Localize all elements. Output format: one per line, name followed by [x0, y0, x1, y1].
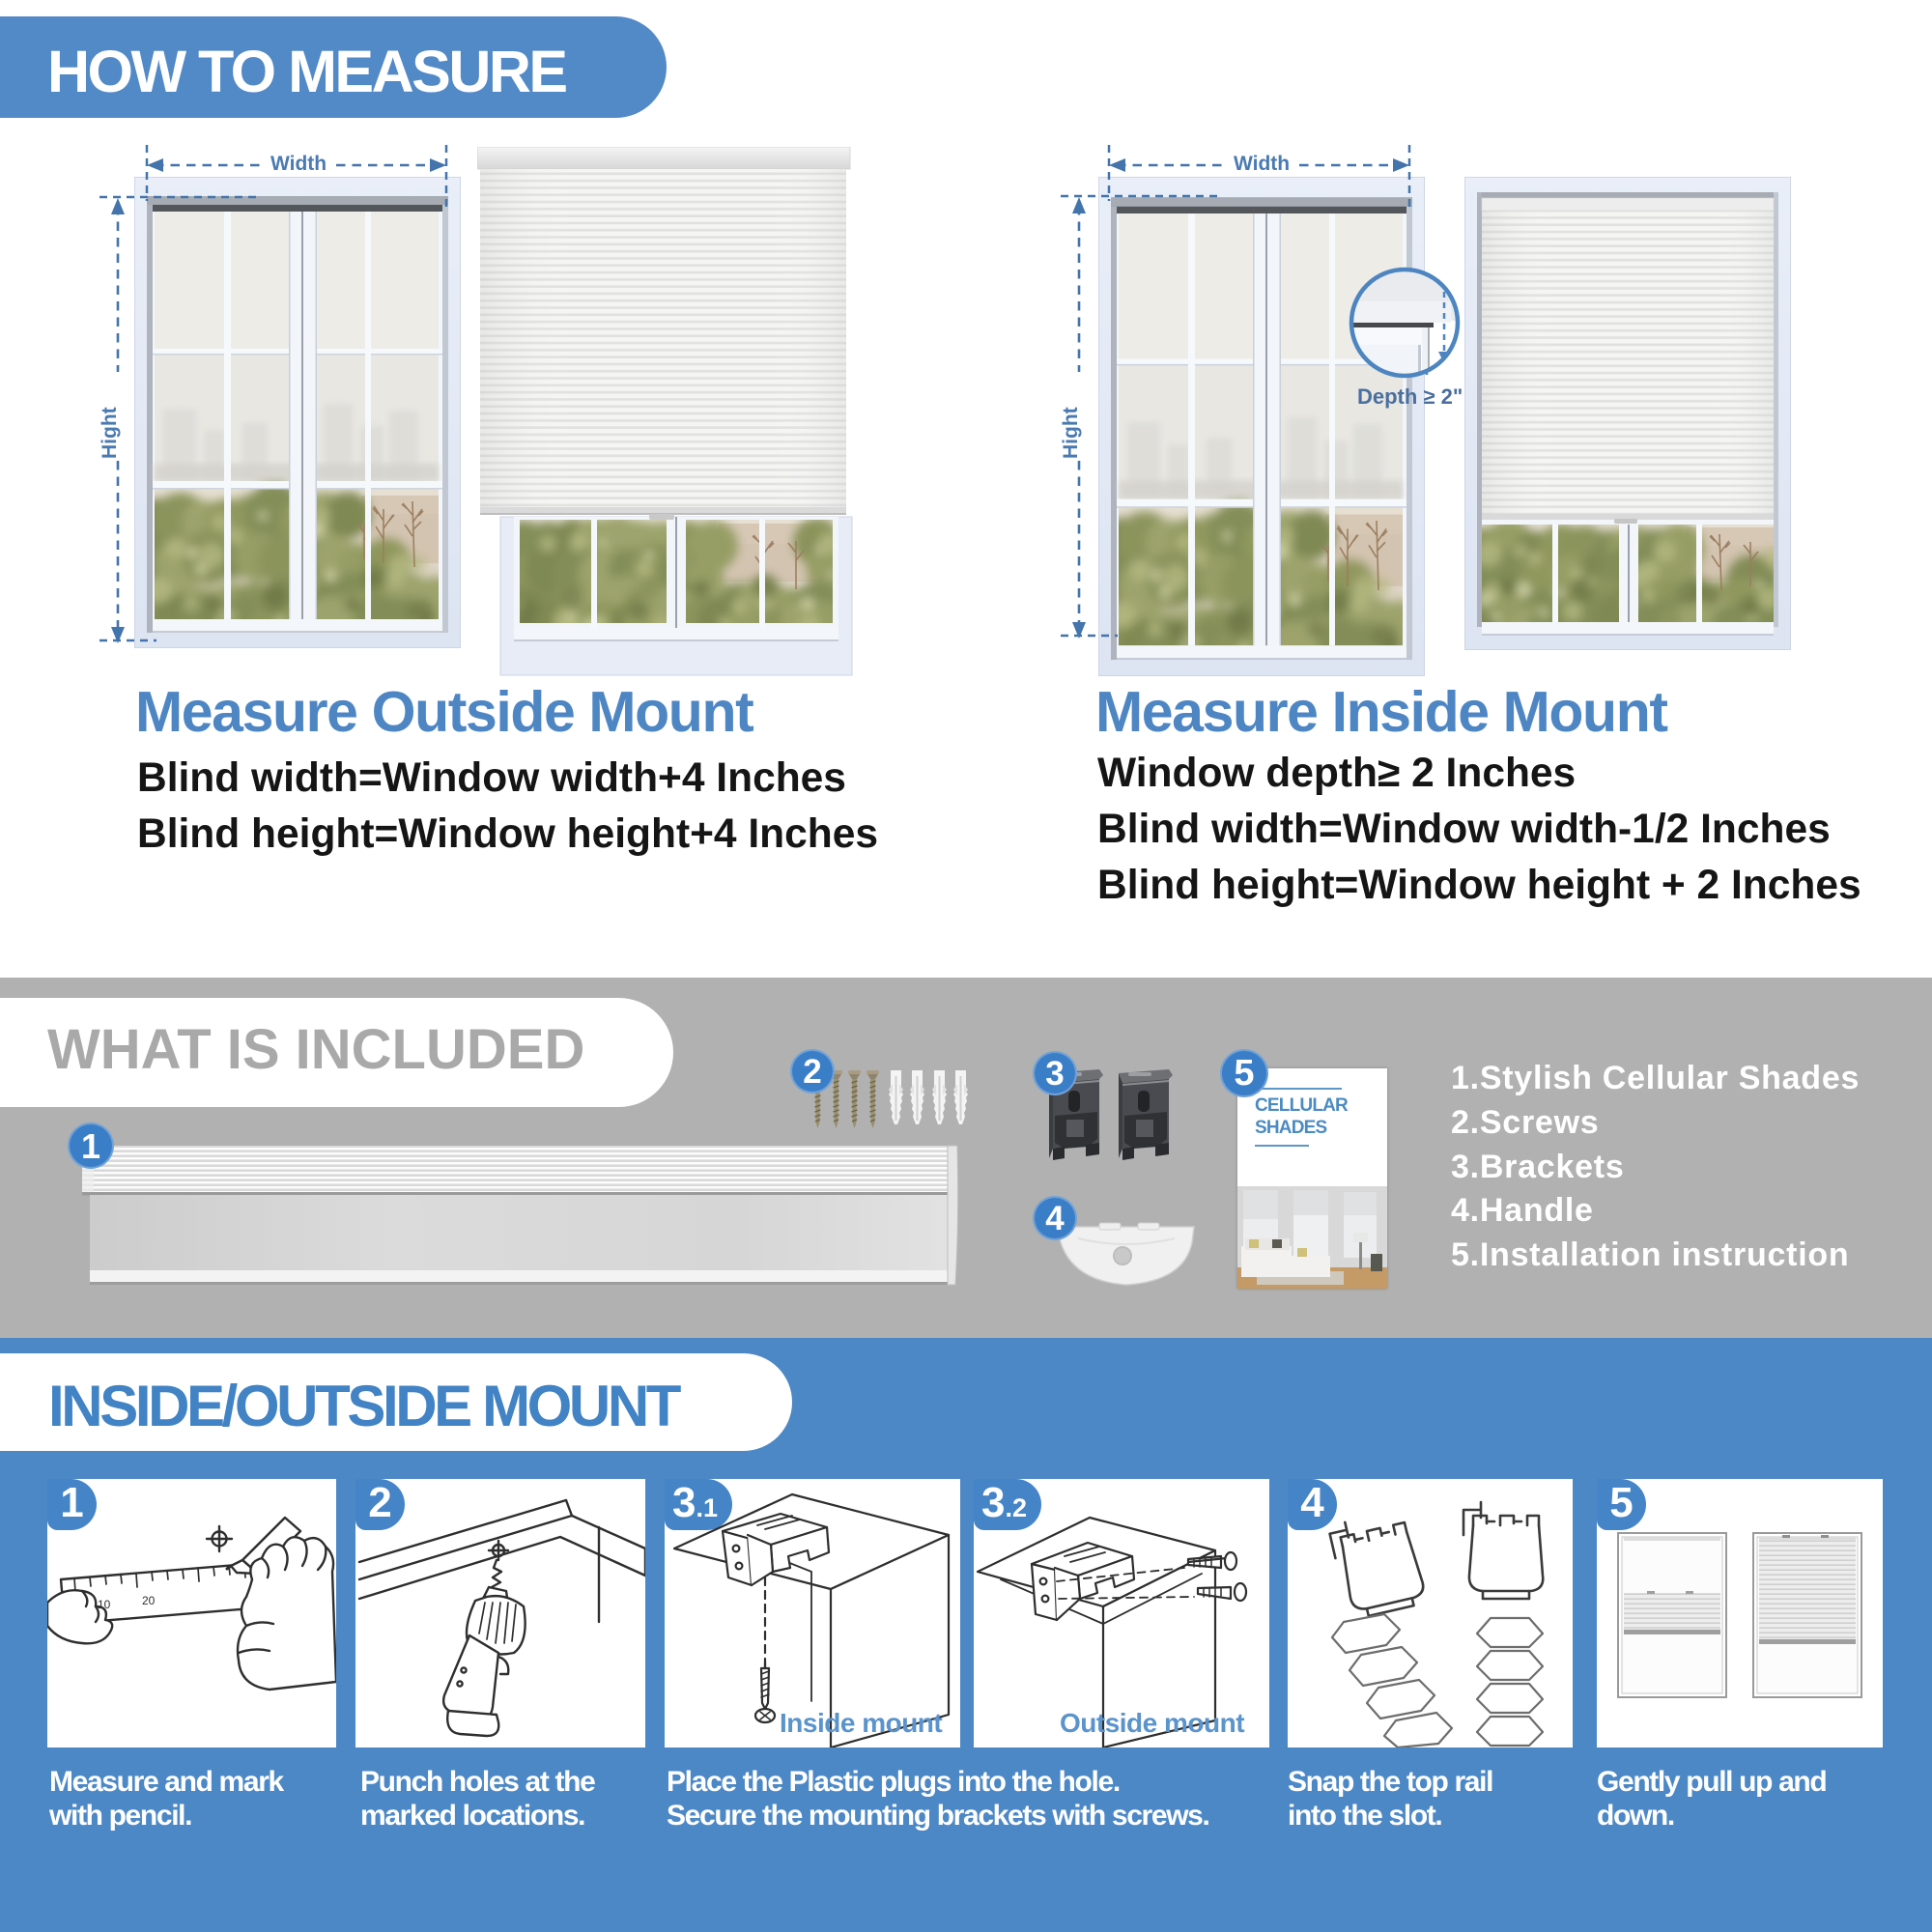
svg-text:10: 10 — [98, 1598, 111, 1611]
svg-text:20: 20 — [142, 1594, 156, 1607]
